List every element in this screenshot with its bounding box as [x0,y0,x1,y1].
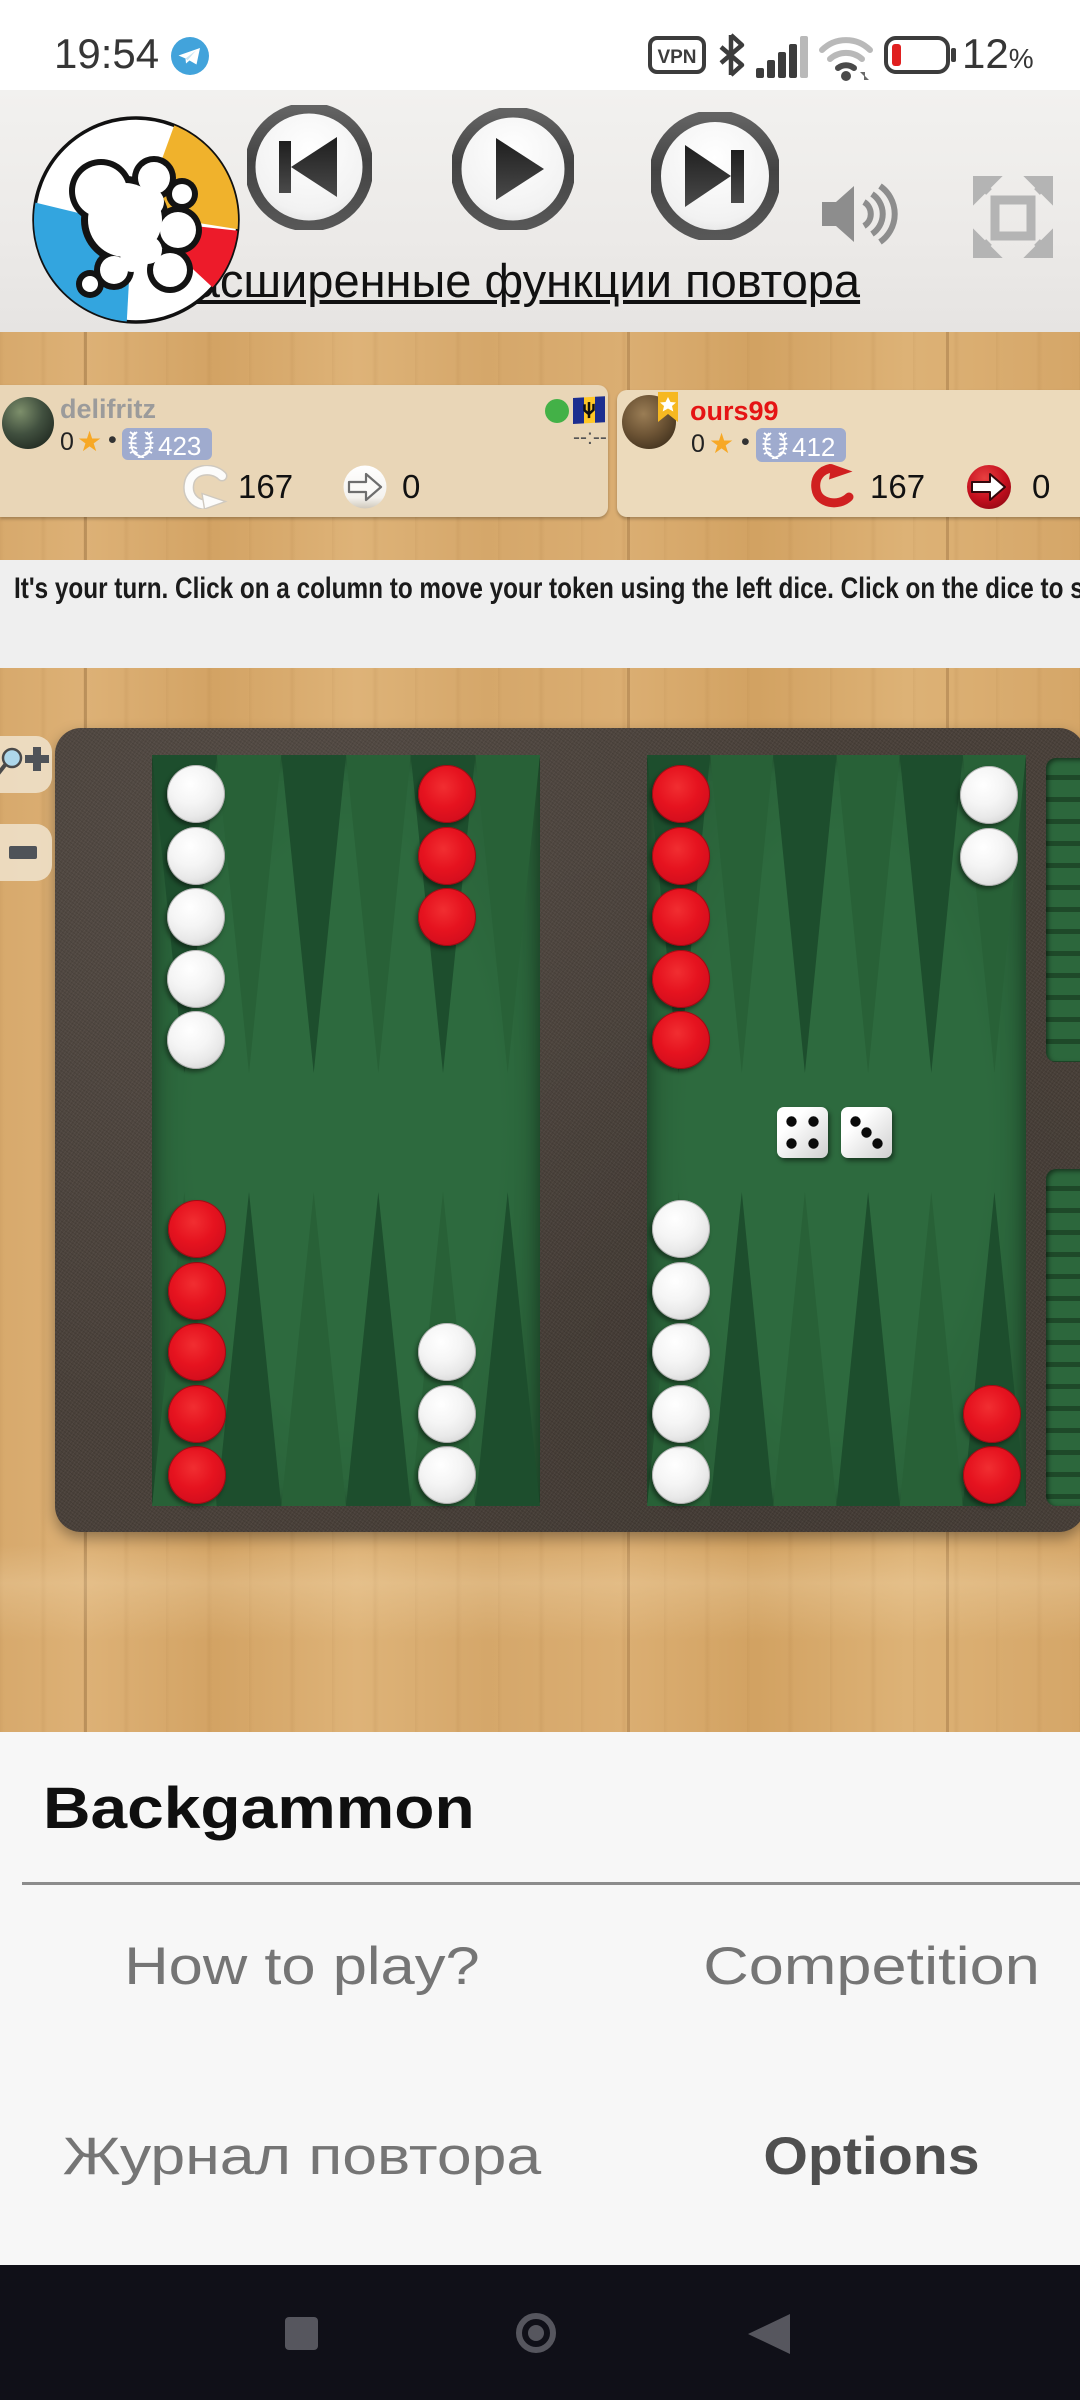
svg-text:VPN: VPN [657,47,696,68]
